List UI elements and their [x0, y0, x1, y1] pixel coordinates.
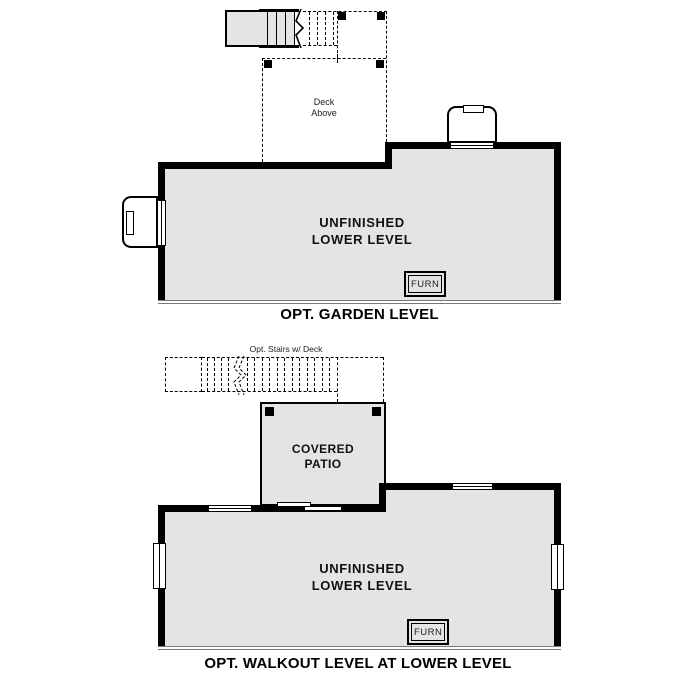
stair-tread-dashed	[292, 358, 293, 391]
stair-tread-dashed	[214, 358, 215, 391]
exterior-wall-right	[554, 590, 561, 646]
window-well-step	[126, 211, 134, 235]
stair-tread-dashed	[247, 358, 248, 391]
stair-tread-dashed	[269, 358, 270, 391]
stair-tread-dashed	[309, 12, 310, 45]
sliding-door	[304, 506, 342, 511]
stair-landing	[225, 10, 261, 47]
deck-post	[338, 12, 346, 20]
deck-outline-right	[383, 357, 384, 402]
patio-post	[265, 407, 274, 416]
deck-post	[377, 12, 385, 20]
deck-above-label-line1: Deck	[274, 97, 374, 108]
stair-tread-dashed	[307, 358, 308, 391]
window	[450, 142, 494, 149]
furnace-label: FURN	[411, 623, 445, 641]
furnace-label: FURN	[408, 275, 442, 293]
stair-dashed-bottom	[202, 391, 337, 392]
deck-above-label: Deck Above	[274, 97, 374, 119]
room-label-line2: LOWER LEVEL	[262, 231, 462, 248]
lower-level-floor	[386, 490, 554, 512]
stair-dashed-bottom	[303, 45, 337, 46]
stair-tread-dashed	[207, 358, 208, 391]
furnace-box: FURN	[407, 619, 449, 645]
patio-label-line2: PATIO	[223, 457, 423, 472]
exterior-wall-top-right	[493, 483, 561, 490]
deck-outline-divider	[337, 357, 338, 402]
room-label-line2: LOWER LEVEL	[262, 577, 462, 594]
deck-post	[376, 60, 384, 68]
exterior-wall-top-left	[158, 162, 392, 169]
opt-stairs-label: Opt. Stairs w/ Deck	[186, 344, 386, 354]
window	[157, 200, 166, 246]
rear-wall-opening	[158, 646, 561, 650]
rear-wall-opening	[158, 300, 561, 304]
furnace-box: FURN	[404, 271, 446, 297]
window	[551, 544, 564, 590]
exterior-wall-top-left	[158, 505, 208, 512]
room-label: UNFINISHED LOWER LEVEL	[262, 214, 462, 248]
patio-post	[372, 407, 381, 416]
window	[153, 543, 166, 589]
stair-tread-dashed	[329, 358, 330, 391]
stair-tread-dashed	[322, 358, 323, 391]
exterior-wall-left	[158, 162, 165, 200]
exterior-wall-right	[554, 142, 561, 300]
stair-tread-dashed	[262, 358, 263, 391]
deck-above-tick	[337, 54, 338, 63]
exterior-wall-left	[158, 505, 165, 543]
room-label-line1: UNFINISHED	[262, 214, 462, 231]
exterior-wall-right	[554, 483, 561, 544]
stair-tread-dashed	[314, 358, 315, 391]
exterior-wall-left	[158, 246, 165, 300]
deck-outline-right	[386, 11, 387, 142]
stair-tread-dashed	[325, 12, 326, 45]
floorplan-sheet: Deck Above FURN UNFINISHED LOWER LEVEL	[0, 0, 687, 687]
exterior-wall-top-right	[385, 142, 450, 149]
patio-label: COVERED PATIO	[223, 442, 423, 472]
stair-tread-line	[276, 12, 277, 45]
window	[208, 505, 252, 512]
stair-tread-dashed	[254, 358, 255, 391]
window-well-step	[463, 105, 484, 113]
stair-tread-line	[267, 12, 268, 45]
stair-tread-dashed	[284, 358, 285, 391]
stair-landing-dashed	[165, 357, 202, 392]
deck-above-left	[262, 58, 263, 162]
deck-above-top	[262, 58, 386, 59]
stair-tread-line	[285, 12, 286, 45]
window	[452, 483, 493, 490]
exterior-wall-left	[158, 589, 165, 646]
room-label-line1: UNFINISHED	[262, 560, 462, 577]
room-label: UNFINISHED LOWER LEVEL	[262, 560, 462, 594]
deck-above-label-line2: Above	[274, 108, 374, 119]
stair-tread-dashed	[299, 358, 300, 391]
plan-caption: OPT. WALKOUT LEVEL AT LOWER LEVEL	[108, 655, 608, 672]
exterior-wall-top-right	[379, 483, 452, 490]
deck-post	[264, 60, 272, 68]
patio-label-line1: COVERED	[223, 442, 423, 457]
stair-tread-dashed	[228, 358, 229, 391]
stair-tread-dashed	[317, 12, 318, 45]
stair-tread-dashed	[333, 12, 334, 45]
stair-tread-dashed	[221, 358, 222, 391]
stair-tread-dashed	[277, 358, 278, 391]
plan-caption: OPT. GARDEN LEVEL	[158, 306, 561, 323]
stair-break-line-icon	[293, 9, 306, 48]
lower-level-floor	[392, 149, 554, 170]
exterior-wall-top-right	[494, 142, 561, 149]
